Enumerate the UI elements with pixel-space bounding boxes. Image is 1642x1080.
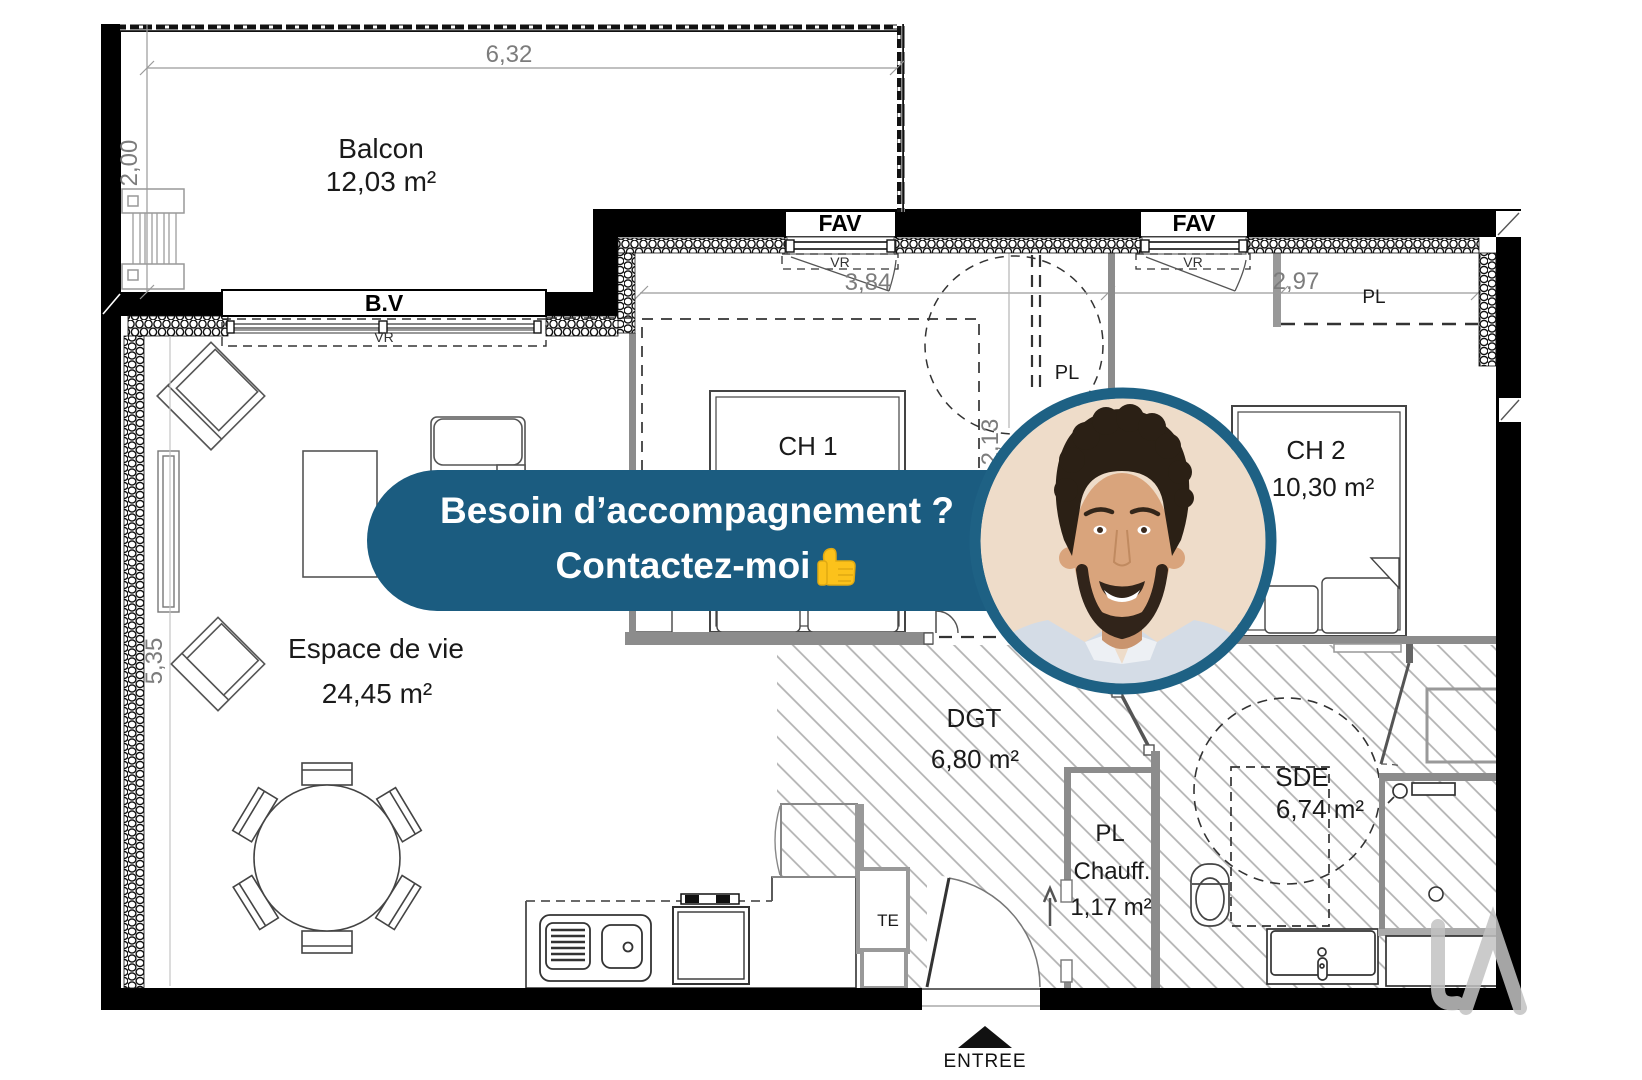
svg-text:Contactez-moi: Contactez-moi — [556, 545, 811, 586]
svg-text:24,45 m²: 24,45 m² — [322, 678, 433, 709]
svg-text:B.V: B.V — [365, 290, 404, 316]
svg-text:CH 2: CH 2 — [1286, 435, 1345, 465]
svg-text:CH 1: CH 1 — [778, 431, 837, 461]
svg-text:PL: PL — [1095, 820, 1124, 847]
svg-text:5,35: 5,35 — [141, 638, 168, 685]
svg-text:Chauff.: Chauff. — [1074, 858, 1151, 885]
svg-text:ENTREE: ENTREE — [943, 1051, 1026, 1072]
svg-text:1,17 m²: 1,17 m² — [1070, 894, 1151, 921]
svg-text:3,84: 3,84 — [845, 269, 892, 296]
svg-text:6,80 m²: 6,80 m² — [931, 744, 1019, 774]
svg-text:2,00: 2,00 — [116, 140, 143, 187]
svg-text:2,97: 2,97 — [1273, 268, 1320, 295]
svg-text:10,30 m²: 10,30 m² — [1272, 472, 1375, 502]
svg-text:SDE: SDE — [1275, 762, 1328, 792]
svg-text:Besoin d’accompagnement ?: Besoin d’accompagnement ? — [440, 490, 954, 531]
svg-text:Balcon: Balcon — [338, 133, 424, 164]
svg-text:VR: VR — [374, 329, 393, 345]
svg-text:12,03 m²: 12,03 m² — [326, 166, 437, 197]
svg-text:6,74 m²: 6,74 m² — [1276, 794, 1364, 824]
svg-text:FAV: FAV — [1172, 210, 1216, 236]
svg-text:PL: PL — [1055, 362, 1079, 384]
svg-text:FAV: FAV — [818, 210, 862, 236]
svg-text:VR: VR — [830, 254, 849, 270]
svg-text:6,32: 6,32 — [486, 41, 533, 68]
svg-text:TE: TE — [877, 911, 899, 930]
svg-text:DGT: DGT — [947, 703, 1002, 733]
svg-text:VR: VR — [1183, 254, 1202, 270]
svg-text:PL: PL — [1362, 287, 1385, 308]
svg-text:Espace de vie: Espace de vie — [288, 633, 464, 664]
